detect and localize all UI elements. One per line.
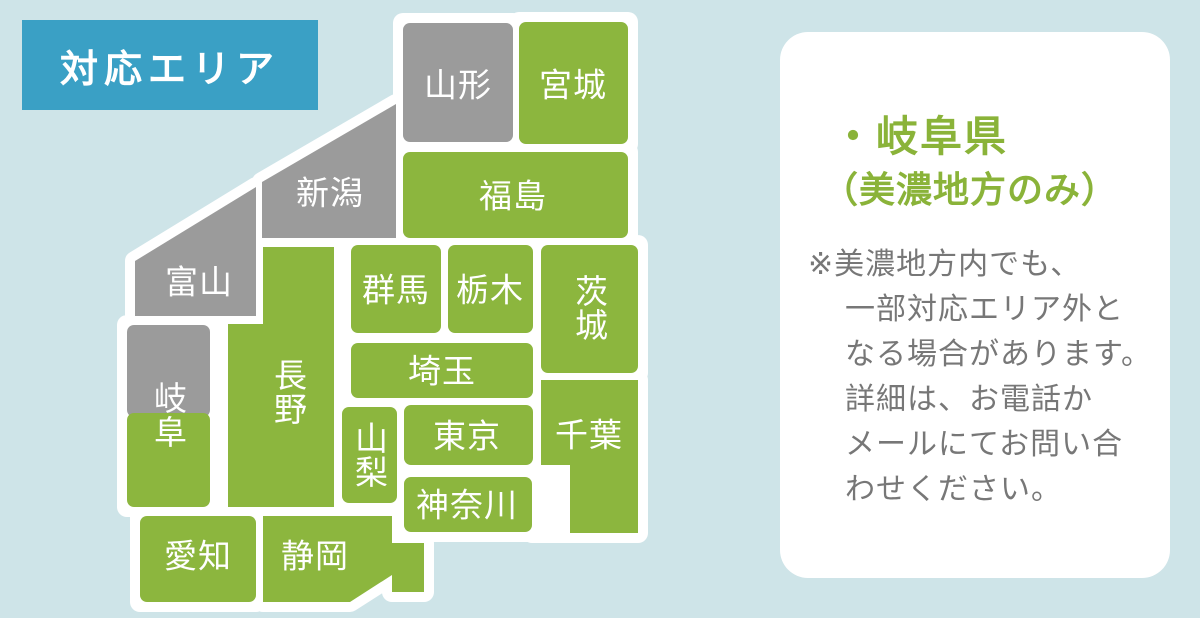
prefecture-label-fukushima: 福島	[479, 178, 547, 215]
prefecture-label-yamanashi: 山梨	[351, 421, 388, 489]
card-note-text: ※美濃地方内でも、 一部対応エリア外と なる場合があります。 詳細は、お電話か …	[808, 242, 1152, 512]
prefecture-label-shizuoka: 静岡	[281, 538, 349, 575]
prefecture-label-miyagi: 宮城	[539, 67, 607, 104]
page-title: 対応エリア	[60, 38, 280, 93]
prefecture-label-aichi: 愛知	[164, 538, 232, 575]
prefecture-label-chiba: 千葉	[555, 417, 623, 454]
prefecture-label-tochigi: 栃木	[456, 272, 524, 309]
prefecture-label-ibaraki: 茨城	[571, 274, 608, 342]
prefecture-label-nagano: 長野	[270, 358, 307, 426]
prefecture-label-gifu: 岐阜	[150, 381, 187, 449]
prefecture-label-saitama: 埼玉	[408, 353, 476, 390]
prefecture-label-gunma: 群馬	[362, 272, 430, 309]
prefecture-niigata	[262, 104, 396, 238]
prefecture-label-yamagata: 山形	[424, 67, 492, 104]
card-heading-gifu: ・岐阜県	[832, 112, 1152, 162]
card-subheading-mino-only: （美濃地方のみ）	[822, 168, 1152, 211]
prefecture-label-toyama: 富山	[165, 264, 233, 301]
prefecture-label-tokyo: 東京	[433, 418, 501, 455]
title-badge: 対応エリア	[22, 20, 318, 110]
prefecture-label-kanagawa: 神奈川	[416, 487, 518, 524]
page-background: 山形 宮城 新潟 福島 富山 群馬 栃木 茨城 埼玉 長野 岐阜 山梨 東京 千…	[0, 0, 1200, 618]
prefecture-label-niigata: 新潟	[296, 175, 364, 212]
info-card: ・岐阜県 （美濃地方のみ） ※美濃地方内でも、 一部対応エリア外と なる場合があ…	[780, 32, 1170, 578]
